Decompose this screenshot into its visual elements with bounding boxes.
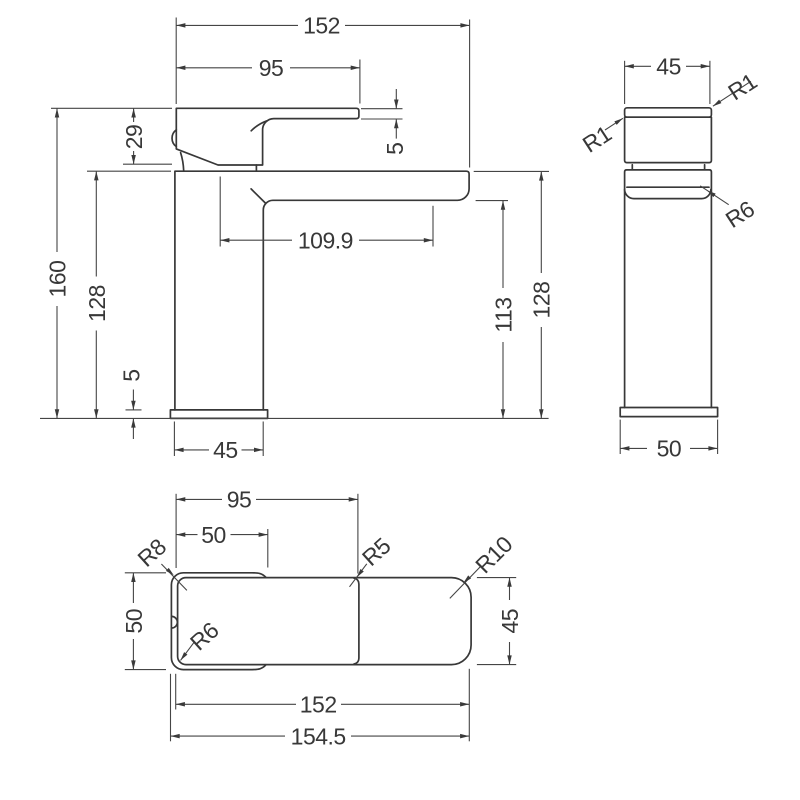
- svg-text:5: 5: [119, 369, 145, 381]
- svg-text:50: 50: [121, 609, 147, 634]
- svg-text:152: 152: [300, 692, 337, 718]
- svg-text:95: 95: [227, 487, 252, 513]
- svg-text:160: 160: [45, 261, 71, 298]
- svg-text:95: 95: [259, 55, 284, 81]
- svg-text:128: 128: [84, 285, 110, 322]
- svg-text:45: 45: [656, 54, 681, 80]
- svg-text:109.9: 109.9: [298, 227, 353, 253]
- svg-text:45: 45: [213, 437, 238, 463]
- svg-text:154.5: 154.5: [291, 723, 346, 749]
- svg-text:113: 113: [491, 297, 517, 332]
- svg-text:128: 128: [528, 282, 554, 319]
- svg-text:5: 5: [382, 143, 408, 155]
- svg-text:50: 50: [657, 436, 682, 462]
- svg-text:29: 29: [121, 125, 147, 150]
- svg-text:45: 45: [497, 609, 523, 634]
- svg-text:152: 152: [303, 13, 340, 39]
- svg-text:50: 50: [201, 522, 226, 548]
